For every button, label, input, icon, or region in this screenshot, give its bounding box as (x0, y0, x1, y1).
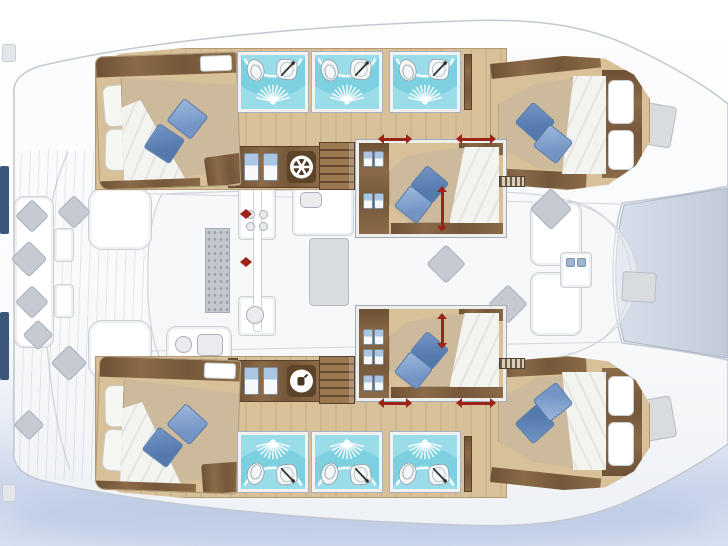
cockpit-table (88, 188, 152, 250)
bathroom-unit (238, 52, 308, 112)
fixture-square-icon (197, 334, 223, 356)
bathroom-art (315, 435, 379, 489)
stern-davit-bar (0, 166, 9, 234)
washbasin-fixture (363, 193, 373, 209)
washbasin-fixture (374, 193, 384, 209)
washbasin-fixture (374, 151, 384, 167)
tri (246, 209, 252, 219)
cabin-fwd-port (490, 56, 650, 190)
washbasin-fixture (263, 153, 278, 181)
fixture-circle-icon (175, 336, 192, 353)
cabin-center-fwd (356, 140, 506, 237)
tri (246, 257, 252, 267)
washbasin-fixture (363, 151, 373, 167)
cockpit-side-table (54, 284, 74, 318)
fixture-square-icon (300, 192, 322, 208)
fixture-circle-icon (246, 306, 264, 324)
washbasin-fixture (363, 375, 373, 391)
bar (383, 138, 407, 141)
direction-arrow (240, 209, 252, 219)
direction-arrow (437, 186, 447, 232)
wood-corner (204, 152, 241, 187)
bar (461, 138, 491, 141)
wood-corner (201, 462, 241, 495)
washbasin-fixture (363, 329, 373, 345)
locker-chip-icon (566, 258, 575, 267)
bar (441, 191, 444, 227)
saloon-table (309, 238, 349, 306)
wood-trim (391, 387, 503, 398)
bow-locker (602, 368, 642, 476)
companionway-stairs (319, 142, 355, 190)
bulkhead-partition (464, 54, 472, 110)
bathroom-art (393, 435, 457, 489)
tri (437, 226, 447, 232)
tri (378, 134, 384, 144)
locker-panel (608, 376, 634, 416)
fixture-circle-icon (259, 222, 268, 231)
tri (437, 343, 447, 349)
fixture-circle-icon (259, 210, 268, 219)
tri (456, 134, 462, 144)
air-vent-grille (499, 176, 525, 187)
catamaran-floorplan (0, 0, 728, 546)
direction-arrow (456, 398, 496, 408)
appliance-box (287, 365, 316, 397)
locker-panel (608, 130, 634, 170)
bulkhead-partition (464, 436, 472, 492)
washbasin-fixture (363, 349, 373, 365)
bar (441, 318, 444, 344)
deck-hatch (621, 271, 657, 303)
bathroom-unit (390, 432, 460, 492)
corridor-cabinet (236, 360, 320, 402)
appliance-icon (287, 365, 316, 397)
washbasin-fixture (374, 375, 384, 391)
cabin-aft-port (95, 52, 242, 191)
stern-step (2, 44, 16, 62)
bathroom-art (241, 435, 305, 489)
tri (406, 398, 412, 408)
wardrobe-column (359, 309, 389, 398)
bow-locker (602, 70, 642, 178)
washbasin-fixture (244, 367, 259, 395)
air-vent-grille (499, 358, 525, 369)
cabin-center-aft (356, 306, 506, 401)
vanity (204, 362, 237, 379)
stern-davit-bar (0, 312, 9, 380)
wood-trim (391, 223, 503, 234)
stairs-edge (349, 357, 354, 403)
ships-wheel-icon (287, 151, 316, 183)
bar (461, 402, 491, 405)
corridor-cabinet (236, 146, 320, 188)
floorplan-layers (0, 0, 728, 546)
direction-arrow (456, 134, 496, 144)
bathroom-unit (238, 432, 308, 492)
stairs-edge (349, 143, 354, 189)
cockpit-side-table (54, 228, 74, 262)
bathroom-art (393, 55, 457, 109)
tri (456, 398, 462, 408)
washbasin-fixture (263, 367, 278, 395)
bar (383, 402, 407, 405)
bathroom-unit (312, 432, 382, 492)
locker-panel (608, 80, 634, 124)
washbasin-fixture (244, 153, 259, 181)
stern-step (2, 484, 16, 502)
fixture-circle-icon (246, 222, 255, 231)
direction-arrow (437, 313, 447, 349)
vanity (200, 55, 233, 72)
tri (378, 398, 384, 408)
cabin-fwd-starboard (490, 356, 650, 490)
direction-arrow (378, 134, 412, 144)
companionway-stairs (319, 356, 355, 404)
direction-arrow (240, 257, 252, 267)
bathroom-unit (312, 52, 382, 112)
washbasin-fixture (374, 329, 384, 345)
direction-arrow (378, 398, 412, 408)
bathroom-art (241, 55, 305, 109)
wardrobe-column (359, 143, 389, 234)
ships-wheel-box (287, 151, 316, 183)
locker-chip-icon (577, 258, 586, 267)
cabin-aft-starboard (95, 356, 242, 495)
washbasin-fixture (374, 349, 384, 365)
tri (437, 186, 447, 192)
tri (406, 134, 412, 144)
tri (490, 398, 496, 408)
foredeck-locker (560, 252, 592, 288)
locker-panel (608, 422, 634, 466)
galley-mat (205, 228, 230, 313)
tri (437, 313, 447, 319)
tri (490, 134, 496, 144)
gray-pillow (426, 244, 466, 284)
bathroom-unit (390, 52, 460, 112)
bathroom-art (315, 55, 379, 109)
